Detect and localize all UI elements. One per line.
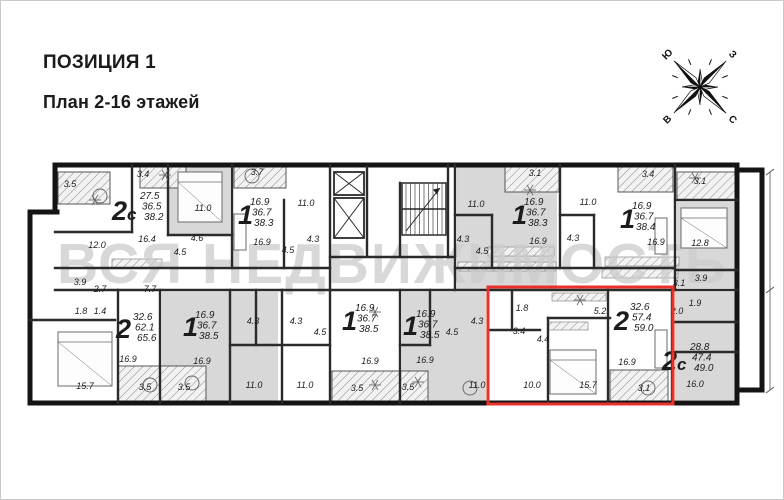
room-area-label: 16.9: [361, 356, 379, 366]
room-area-label: 4.5: [174, 247, 188, 257]
apt-1-top-2: 116.936.738.3: [238, 197, 274, 230]
room-area-label: 4.5: [446, 327, 460, 337]
apartment-area-value: 36.5: [142, 202, 162, 213]
room-area-label: 4.5: [314, 327, 328, 337]
apartment-area-value: 38.5: [420, 330, 440, 341]
room-area-label: 3.4: [513, 326, 526, 336]
apartment-area-value: 38.5: [199, 331, 219, 342]
room-area-label: 11.0: [468, 199, 485, 209]
room-area-label: 3.5: [351, 383, 365, 393]
apartment-area-value: 16.9: [195, 310, 215, 321]
room-area-label: 16.9: [647, 237, 665, 247]
room-area-label: 4.4: [537, 334, 550, 344]
room-area-label: 3.5: [64, 179, 78, 189]
room-area-label: 3.4: [137, 169, 150, 179]
room-area-label: 16.9: [529, 236, 547, 246]
room-area-label: 16.0: [686, 379, 704, 389]
room-area-label: 1.4: [94, 306, 107, 316]
room-area-label: 15.7: [76, 381, 95, 391]
bed: [58, 332, 112, 386]
apartment-area-value: 36.7: [357, 314, 377, 325]
room-area-label: 3.1: [694, 176, 707, 186]
room-area-label: 7.7: [144, 284, 158, 294]
glazing-hatch: [548, 322, 588, 330]
room-area-label: 11.0: [246, 380, 263, 390]
room-area-label: 16.9: [618, 357, 636, 367]
apartment-area-value: 36.7: [418, 320, 438, 331]
room-area-label: 16.9: [119, 354, 137, 364]
room-area-label: 2.7: [93, 284, 108, 294]
room-area-label: 3.9: [74, 277, 87, 287]
room-area-label: 4.6: [191, 233, 204, 243]
apt-1-top-4: 116.936.738.4: [620, 201, 656, 234]
apartment-area-value: 36.7: [252, 208, 272, 219]
room-area-label: 4.3: [307, 234, 320, 244]
apartment-area-value: 62.1: [135, 323, 154, 334]
room-area-label: 16.4: [138, 234, 156, 244]
room-area-label: 4.3: [567, 233, 580, 243]
apt-2-highlighted: 232.657.459.0: [613, 302, 654, 336]
sofa: [655, 218, 667, 254]
apartment-area-value: 32.6: [630, 302, 650, 313]
room-area-label: 4.3: [471, 316, 484, 326]
apartment-area-value: 38.5: [359, 324, 379, 335]
apartment-area-value: 16.9: [632, 201, 652, 212]
room-area-label: 3.5: [178, 382, 192, 392]
apt-1-bottom-3: 116.936.738.5: [403, 309, 440, 341]
room-area-label: 3.5: [402, 382, 416, 392]
apartment-area-value: 16.9: [355, 303, 375, 314]
room-area-label: 3.5: [139, 382, 153, 392]
apartment-type-label: 2: [613, 306, 629, 336]
room-area-label: 15.7: [579, 380, 598, 390]
apt-1-top-3: 116.936.738.3: [512, 197, 548, 230]
room-area-label: 3.1: [638, 383, 651, 393]
room-area-label: 11.0: [298, 198, 315, 208]
apartment-area-value: 36.7: [526, 208, 546, 219]
apartment-area-value: 47.4: [692, 353, 712, 364]
apartment-area-value: 36.7: [197, 321, 217, 332]
room-area-label: 4.5: [282, 245, 296, 255]
apartment-area-value: 16.9: [416, 309, 436, 320]
apt-2-bottom-left: 232.662.165.6: [115, 312, 157, 344]
apt-1-bottom-2: 116.936.738.5: [342, 303, 379, 336]
apartment-area-value: 57.4: [632, 313, 652, 324]
room-area-label: 5.2: [594, 306, 607, 316]
apartment-area-value: 38.3: [528, 218, 548, 229]
apt-1-bottom-1: 116.936.738.5: [183, 310, 219, 342]
apartment-area-value: 38.4: [636, 222, 656, 233]
apartment-area-value: 36.7: [634, 212, 654, 223]
plant-icon: [375, 307, 378, 312]
apartment-area-value: 59.0: [634, 323, 654, 334]
room-area-label: 1.8: [516, 303, 529, 313]
apartment-type-label: 2: [115, 314, 131, 344]
apartment-area-value: 16.9: [524, 197, 544, 208]
room-area-label: 4.3: [247, 316, 260, 326]
room-area-label: 4.3: [290, 316, 303, 326]
bed: [178, 172, 222, 222]
room-area-label: 3.7: [251, 167, 265, 177]
room-area-label: 16.9: [416, 355, 434, 365]
room-area-label: 3.1: [529, 168, 542, 178]
apartment-area-value: 65.6: [137, 333, 157, 344]
apartment-area-value: 28.8: [689, 342, 710, 353]
room-area-label: 3.9: [695, 273, 708, 283]
apartment-area-value: 38.2: [144, 212, 164, 223]
room-area-label: 11.0: [195, 203, 212, 213]
room-area-label: 16.9: [193, 356, 211, 366]
room-area-label: 1.8: [75, 306, 88, 316]
room-area-label: 1.9: [689, 298, 702, 308]
room-area-label: 4.3: [457, 234, 470, 244]
apartment-area-value: 27.5: [139, 191, 160, 202]
room-area-label: 4.5: [476, 246, 490, 256]
apt-2c-top-left: 2с27.536.538.2: [111, 191, 164, 226]
apartment-area-value: 38.3: [254, 218, 274, 229]
room-area-label: 10.0: [523, 380, 541, 390]
room-area-label: 11.0: [580, 197, 597, 207]
room-area-label: 12.0: [88, 240, 106, 250]
apartment-area-value: 32.6: [133, 312, 153, 323]
room-area-label: 12.8: [691, 238, 709, 248]
apartment-area-value: 16.9: [250, 197, 270, 208]
room-area-label: 11.0: [469, 380, 486, 390]
apartment-area-value: 49.0: [694, 363, 714, 374]
floor-plan: ВСЯ НЕДВИЖИМОСТЬ3.53.411.012.016.44.64.5…: [0, 0, 784, 500]
balcony-hatch: [118, 366, 206, 403]
room-area-label: 11.0: [297, 380, 314, 390]
room-area-label: 3.1: [673, 278, 686, 288]
room-area-label: 3.4: [642, 169, 655, 179]
room-area-label: 16.9: [253, 237, 271, 247]
floorplan-page: ПОЗИЦИЯ 1 План 2-16 этажей ЮЗВС ВСЯ НЕДВ…: [0, 0, 784, 500]
